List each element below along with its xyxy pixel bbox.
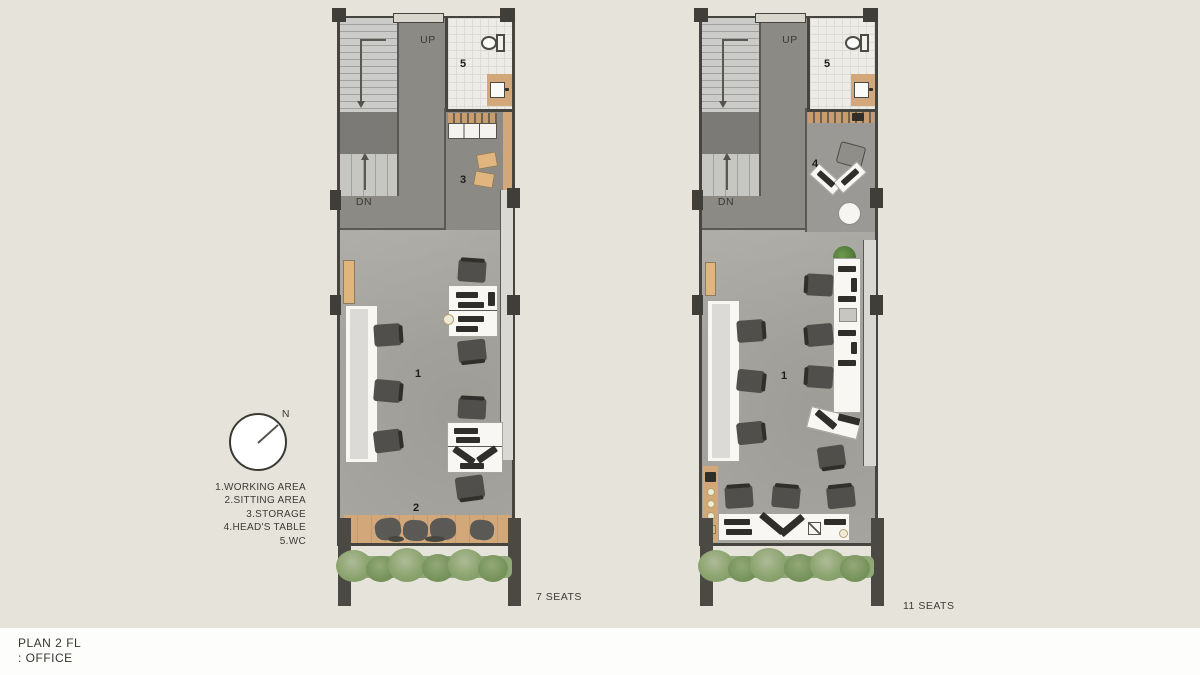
stair-down-label: DN	[348, 196, 380, 208]
bush	[478, 555, 508, 582]
chair	[805, 365, 833, 389]
laptop	[838, 330, 856, 336]
cabinet	[343, 260, 355, 304]
chair	[736, 369, 765, 394]
faucet-icon	[869, 88, 873, 91]
cushion	[388, 536, 404, 542]
legend-item: 1.WORKING AREA	[116, 481, 306, 494]
stair-hall-floor	[398, 18, 445, 230]
footer-strip	[0, 628, 1200, 675]
stair-up-label: UP	[412, 34, 444, 46]
stair-wall-line	[397, 18, 399, 196]
laptop	[456, 292, 478, 298]
column	[692, 295, 703, 315]
shelf-item	[852, 113, 864, 121]
laptop	[724, 519, 750, 525]
laptop	[838, 266, 856, 272]
staircase-upper-flight	[702, 18, 760, 112]
legend: 1.WORKING AREA 2.SITTING AREA 3.STORAGE …	[116, 481, 306, 548]
stair-arrow-line	[726, 160, 728, 190]
page-title: PLAN 2 FL : OFFICE	[18, 636, 81, 666]
chair	[724, 485, 753, 509]
partition-line	[340, 228, 446, 230]
partition-line	[444, 108, 446, 230]
partition-line	[702, 228, 807, 230]
column	[330, 295, 341, 315]
stair-arrow-line	[360, 39, 386, 41]
printer	[839, 308, 857, 322]
desk-item	[851, 342, 857, 354]
round-table	[838, 202, 861, 225]
chair	[455, 474, 486, 501]
wc-label: 5	[456, 58, 470, 70]
column	[507, 295, 520, 315]
chair	[826, 485, 856, 510]
legend-item: 3.STORAGE	[116, 508, 306, 521]
staircase-lower-flight	[702, 154, 760, 196]
stair-down-label: DN	[710, 196, 742, 208]
laptop	[456, 437, 480, 443]
floor-plan-option-2: UP DN 5 4 1	[692, 8, 892, 628]
plan-title-line2: : OFFICE	[18, 651, 81, 666]
window-band	[863, 240, 876, 466]
plate-icon	[839, 529, 848, 538]
column	[870, 188, 883, 208]
column	[507, 188, 520, 208]
column	[692, 190, 703, 210]
option-2-seats: 11 SEATS	[903, 600, 956, 613]
stair-arrow-head	[361, 153, 369, 160]
option-1-seats: 7 SEATS	[536, 591, 650, 604]
chair	[457, 339, 487, 364]
laptop	[824, 519, 846, 525]
chair	[736, 319, 764, 343]
storage-label: 3	[456, 174, 470, 186]
partition-line	[805, 108, 807, 232]
head-room-label: 4	[808, 158, 822, 170]
column	[500, 8, 515, 22]
burner-icon	[707, 488, 715, 496]
chair	[457, 259, 486, 283]
burner-icon	[707, 500, 715, 508]
bush	[388, 548, 426, 582]
toilet-tank-icon	[860, 34, 869, 52]
laptop	[460, 463, 484, 469]
legend-item: 5.WC	[116, 535, 306, 548]
legend-item: 2.SITTING AREA	[116, 494, 306, 507]
bush	[750, 548, 788, 582]
appliance-icon	[705, 472, 716, 482]
chair	[771, 485, 801, 509]
desk-surface-panel	[350, 309, 368, 459]
toilet-icon	[481, 36, 497, 50]
desk-equipment	[808, 522, 821, 535]
stair-wall-line	[759, 18, 761, 196]
cabinet	[705, 262, 716, 296]
kettle-icon	[443, 314, 454, 325]
sink-icon	[490, 82, 505, 98]
laptop	[458, 316, 484, 322]
staircase-upper-flight	[340, 18, 398, 112]
toilet-tank-icon	[496, 34, 505, 52]
chair	[805, 273, 833, 296]
chair	[457, 397, 486, 419]
stair-arrow-line	[722, 39, 748, 41]
column	[332, 8, 346, 22]
staircase-lower-flight	[340, 154, 398, 196]
chair	[817, 444, 847, 470]
laptop	[458, 302, 484, 308]
window-band	[500, 190, 513, 460]
column	[694, 8, 708, 22]
storage-stool	[473, 170, 495, 188]
plan-title-line1: PLAN 2 FL	[18, 636, 81, 651]
wc-label: 5	[820, 58, 834, 70]
chair	[373, 428, 402, 453]
bush	[840, 555, 870, 582]
compass-north-label: N	[279, 408, 293, 420]
cushion	[425, 536, 445, 542]
stair-arrow-line	[364, 160, 366, 190]
storage-boxes	[448, 123, 497, 139]
toilet-icon	[845, 36, 861, 50]
staircase-landing	[340, 112, 398, 154]
faucet-icon	[505, 88, 509, 91]
desk-divider	[449, 310, 497, 311]
console-shelf	[808, 112, 874, 123]
sink-icon	[854, 82, 869, 98]
column	[863, 8, 878, 22]
desk-item	[851, 278, 857, 292]
stair-arrow-head	[723, 153, 731, 160]
presentation-canvas: UP DN 5 3 1 2	[0, 0, 1200, 675]
chair	[805, 323, 834, 347]
entry-door	[755, 13, 806, 23]
column	[870, 295, 883, 315]
stair-hall-floor	[760, 18, 807, 230]
chair	[736, 421, 765, 446]
legend-item: 4.HEAD'S TABLE	[116, 521, 306, 534]
floor-plan-option-1: UP DN 5 3 1 2	[330, 8, 530, 628]
desk-item	[488, 292, 495, 306]
wood-wall-finish	[503, 112, 512, 190]
laptop	[838, 296, 856, 302]
working-area-label: 1	[410, 368, 426, 380]
stair-arrow-line	[360, 39, 362, 101]
sitting-area-label: 2	[408, 502, 424, 514]
working-area-label: 1	[776, 370, 792, 382]
staircase-landing	[702, 112, 760, 154]
stair-arrow-head	[719, 101, 727, 108]
laptop	[456, 326, 478, 332]
bean-bag	[469, 519, 495, 541]
laptop	[726, 529, 752, 535]
stair-arrow-line	[722, 39, 724, 101]
laptop	[838, 360, 856, 366]
laptop	[454, 428, 478, 434]
stair-arrow-head	[357, 101, 365, 108]
chair	[373, 323, 401, 347]
desk-surface-panel	[712, 304, 730, 458]
chair	[373, 379, 402, 403]
entry-door	[393, 13, 444, 23]
column	[330, 190, 341, 210]
stair-up-label: UP	[774, 34, 806, 46]
storage-shelf	[448, 113, 497, 123]
